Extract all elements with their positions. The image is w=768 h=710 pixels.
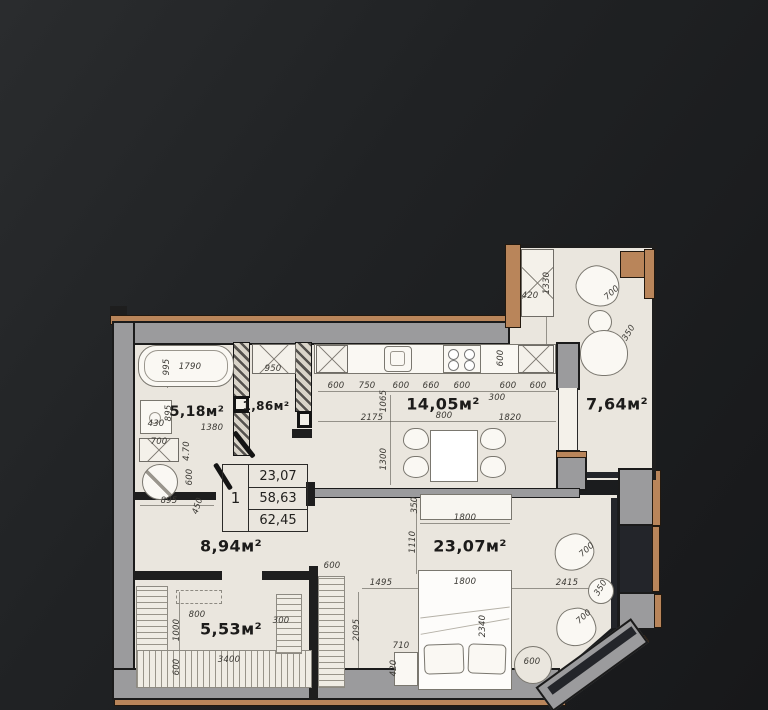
unit-number: 1 — [223, 465, 249, 531]
dimension-label: 420 — [522, 291, 539, 301]
dimension-label: 1800 — [454, 577, 476, 587]
dimension-label: 995 — [162, 359, 172, 376]
dimension-label: 4.70 — [182, 441, 192, 461]
dimension-label: 660 — [423, 381, 440, 391]
room-area-label: 5,53м² — [200, 620, 262, 639]
dimension-label: 450 — [191, 496, 206, 515]
dimension-label: 710 — [393, 641, 410, 651]
legend-total-area: 62,45 — [249, 509, 307, 531]
room-area-label: 5,18м² — [170, 404, 225, 420]
dimension-label: 350 — [592, 578, 609, 598]
dimension-label: 420 — [389, 660, 399, 677]
dimension-label: 1495 — [370, 578, 392, 588]
room-area-label: 7,64м² — [586, 395, 648, 414]
legend-apartment-area: 58,63 — [249, 487, 307, 509]
dimension-label: 700 — [577, 541, 596, 560]
dimension-label: 600 — [185, 469, 195, 486]
dimension-label: 1330 — [542, 272, 552, 294]
dimension-label: 430 — [148, 419, 165, 429]
room-area-label: 1,86м² — [242, 399, 289, 413]
dimension-label: 700 — [574, 608, 593, 627]
dimension-label: 1065 — [379, 390, 389, 412]
dimension-label: 1380 — [201, 423, 223, 433]
area-legend-table: 1 23,07 58,63 62,45 — [222, 464, 308, 532]
dimension-label: 700 — [151, 437, 168, 447]
dimension-label: 300 — [489, 393, 506, 403]
dimension-label: 600 — [530, 381, 547, 391]
dimension-label: 2175 — [361, 413, 383, 423]
dimension-label: 600 — [500, 381, 517, 391]
dimension-label: 1820 — [499, 413, 521, 423]
dimension-label: 600 — [454, 381, 471, 391]
dimension-label: 750 — [359, 381, 376, 391]
dimension-label: 350 — [410, 497, 420, 514]
dimension-label: 950 — [265, 364, 282, 374]
dimension-label: 1300 — [379, 448, 389, 470]
dimension-label: 1790 — [179, 362, 201, 372]
dimension-label: 600 — [496, 350, 506, 367]
dimension-label: 800 — [436, 411, 453, 421]
dimension-label: 600 — [393, 381, 410, 391]
dimension-label: 600 — [524, 657, 541, 667]
dimension-label: 1000 — [172, 619, 182, 641]
room-area-label: 8,94м² — [200, 537, 262, 556]
dimension-label: 2340 — [478, 615, 488, 637]
dimension-label: 1800 — [454, 513, 476, 523]
dimension-label: 300 — [273, 616, 290, 626]
labels-layer: 5,18м²1,86м²14,05м²7,64м²8,94м²23,07м²5,… — [0, 0, 768, 710]
dimension-label: 2415 — [556, 578, 578, 588]
dimension-label: 600 — [324, 561, 341, 571]
dimension-label: 895 — [164, 405, 174, 422]
dimension-label: 800 — [189, 610, 206, 620]
dimension-label: 350 — [620, 323, 637, 343]
room-area-label: 23,07м² — [433, 537, 507, 556]
floor-plan-canvas: 1 23,07 58,63 62,45 5,18м²1,86м²14,05м²7… — [0, 0, 768, 710]
dimension-label: 700 — [602, 284, 621, 303]
dimension-label: 1110 — [408, 531, 418, 553]
dimension-label: 2095 — [352, 619, 362, 641]
dimension-label: 895 — [161, 496, 178, 506]
dimension-label: 600 — [172, 659, 182, 676]
dimension-label: 3400 — [218, 655, 240, 665]
dimension-label: 600 — [328, 381, 345, 391]
legend-living-area: 23,07 — [249, 465, 307, 487]
